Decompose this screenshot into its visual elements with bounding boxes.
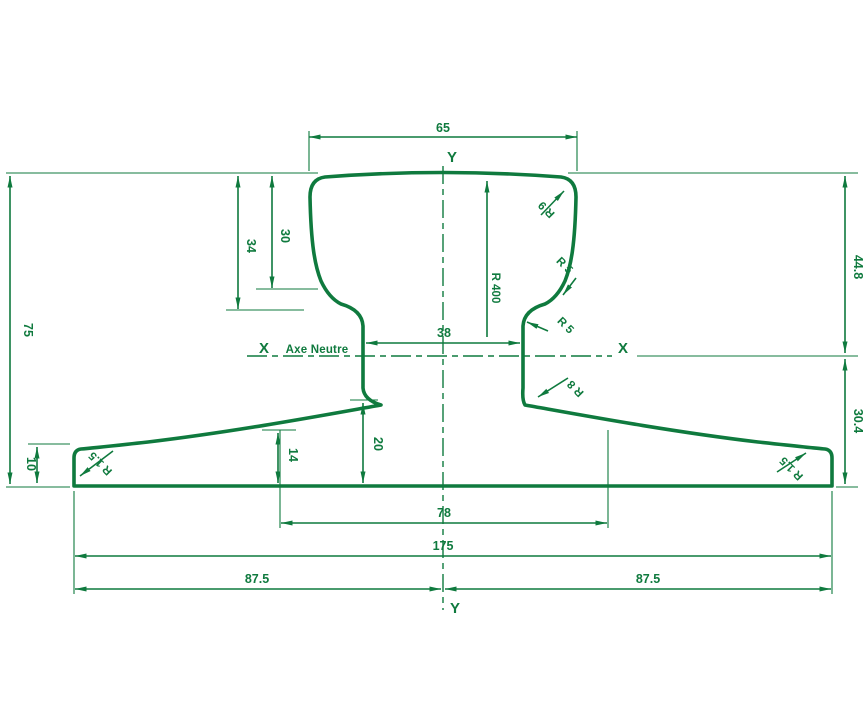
label-y-bottom: Y — [450, 600, 460, 617]
label-half-right: 87.5 — [636, 572, 660, 586]
label-30: 30 — [278, 229, 292, 243]
label-34: 34 — [244, 239, 258, 253]
label-14: 14 — [286, 448, 300, 462]
label-foot-width: 175 — [433, 539, 454, 553]
label-10: 10 — [24, 457, 38, 471]
label-total-height: 75 — [21, 323, 35, 337]
rail-profile-drawing: 65 34 30 75 44.8 30.4 38 20 14 10 78 175… — [0, 0, 865, 719]
label-crown-radius: R 400 — [489, 273, 501, 304]
background — [0, 0, 865, 719]
label-78: 78 — [437, 506, 451, 520]
label-x-right: X — [618, 340, 628, 357]
label-above-axis: 44.8 — [851, 255, 865, 279]
label-neutral-axis: Axe Neutre — [286, 344, 349, 356]
drawing-canvas: 65 34 30 75 44.8 30.4 38 20 14 10 78 175… — [0, 0, 865, 719]
label-below-axis: 30.4 — [851, 409, 865, 433]
label-web-width: 38 — [437, 326, 451, 340]
label-y-top: Y — [447, 149, 457, 166]
label-x-left: X — [259, 340, 269, 357]
label-half-left: 87.5 — [245, 572, 269, 586]
label-head-width: 65 — [436, 121, 450, 135]
label-20: 20 — [371, 437, 385, 451]
